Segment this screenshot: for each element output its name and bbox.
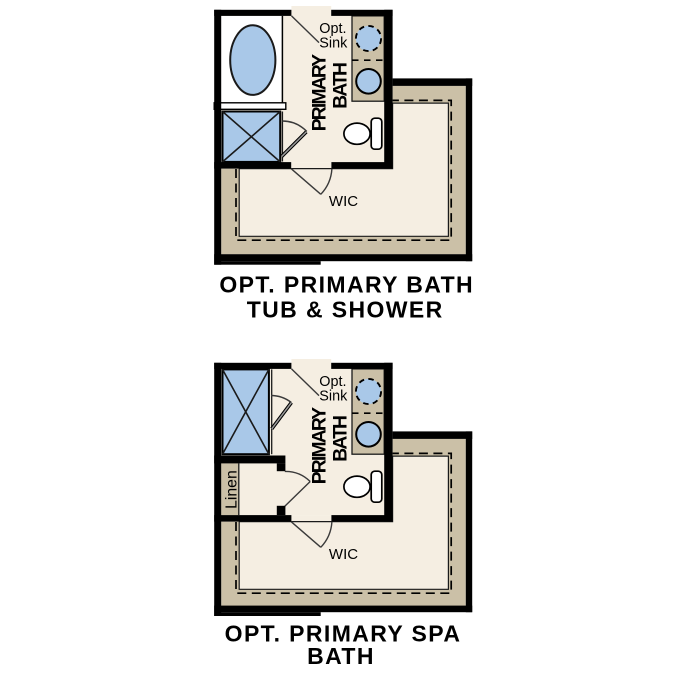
- svg-text:PRIMARY: PRIMARY: [310, 54, 331, 132]
- svg-text:BATH: BATH: [330, 63, 351, 109]
- svg-text:WIC: WIC: [329, 193, 358, 210]
- svg-text:Sink: Sink: [319, 36, 348, 52]
- svg-text:Sink: Sink: [319, 389, 348, 405]
- svg-text:OPT. PRIMARY BATH: OPT. PRIMARY BATH: [219, 272, 474, 298]
- svg-text:PRIMARY: PRIMARY: [310, 407, 331, 485]
- svg-text:Linen: Linen: [224, 470, 241, 509]
- svg-text:TUB & SHOWER: TUB & SHOWER: [247, 297, 444, 323]
- svg-text:WIC: WIC: [329, 546, 358, 563]
- svg-text:BATH: BATH: [307, 643, 375, 669]
- svg-text:BATH: BATH: [330, 416, 351, 462]
